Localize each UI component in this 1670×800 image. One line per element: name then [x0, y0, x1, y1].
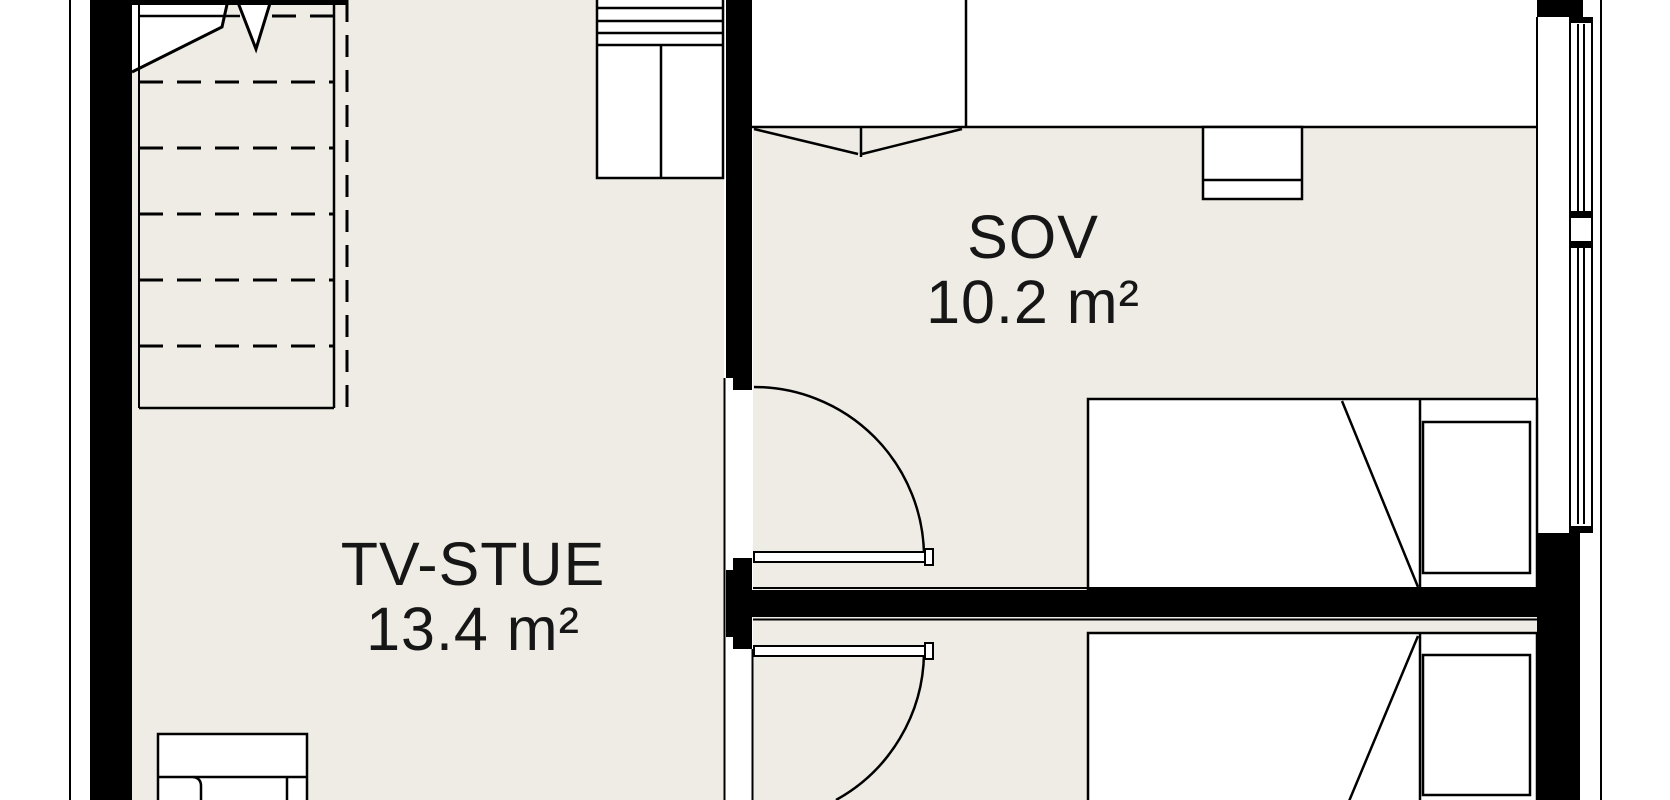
bed-pillow [1423, 655, 1530, 795]
room-label-tv-stue: TV-STUE 13.4 m² [173, 532, 773, 662]
wall-right-top [1537, 0, 1583, 17]
room-name: SOV [733, 205, 1333, 270]
bed-sov [1088, 399, 1537, 589]
wall-horizontal-mid [752, 590, 1580, 617]
wall-cabinet [1203, 127, 1302, 199]
window-cap-bottom [1570, 526, 1592, 533]
bed-lower [1088, 633, 1537, 800]
wall-right-bottom [1537, 533, 1580, 800]
wall-left [90, 0, 132, 800]
door-leaf-end [925, 549, 933, 565]
door-jamb [733, 378, 752, 390]
room-label-sov: SOV 10.2 m² [733, 205, 1333, 335]
wardrobe [597, 0, 723, 178]
window-cap-top [1570, 17, 1592, 23]
room-area: 10.2 m² [733, 270, 1333, 335]
floor-plan-drawing [0, 0, 1670, 800]
sofa [158, 734, 307, 800]
floor-plan: TV-STUE 13.4 m² SOV 10.2 m² [0, 0, 1670, 800]
wall-top-remnant [90, 0, 347, 5]
bed-pillow [1423, 422, 1530, 573]
window-sash-junction [1570, 211, 1592, 218]
room-area: 13.4 m² [173, 597, 773, 662]
window-sash-junction [1570, 241, 1592, 248]
door-leaf-end [925, 643, 933, 659]
room-name: TV-STUE [173, 532, 773, 597]
door-leaf [754, 646, 927, 656]
door-leaf [754, 552, 927, 562]
window [1537, 17, 1592, 533]
